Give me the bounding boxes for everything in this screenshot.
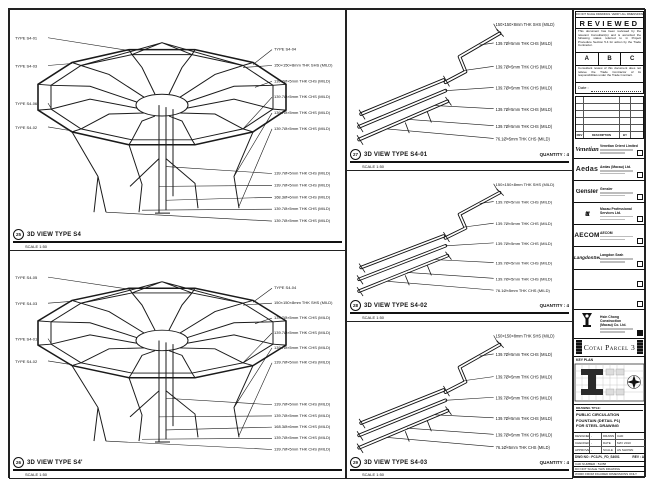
consultant-row-aecom: AECOM AECOM — [574, 225, 645, 247]
status-options: A B C — [576, 53, 643, 66]
annotation-label: TYPE S4-02 — [15, 125, 37, 130]
canopy-3d-drawing: TYPE S4-01 TYPE S4-03 TYPE S4-06 TYPE S4… — [10, 10, 346, 228]
annotation-label: 139.7Ø×5mm THK CHS (MILD) — [274, 182, 331, 187]
field-value: CAD — [616, 433, 645, 440]
dwg-no-value: PC3-PL_FD_S4001 — [591, 454, 619, 461]
address-line — [600, 192, 633, 194]
by-col-header: BY — [620, 132, 631, 138]
annotation-labels: 150×150×8mm THK SHS (MILD) 139.7Ø×5mm TH… — [496, 22, 555, 142]
annotation-label: 150×150×8mm THK SHS (MILD) — [496, 22, 555, 27]
annotation-label: 139.7Ø×5mm THK CHS (MILD) — [274, 206, 331, 211]
quantity-note: QUANTITY : 4 — [540, 152, 569, 157]
field-value: - — [590, 433, 602, 440]
description-col-header: DESCRIPTION — [584, 132, 620, 138]
blank-stamp-row — [574, 270, 645, 290]
venetian-logo: Venetian — [574, 146, 600, 153]
annotation-labels: 150×150×8mm THK SHS (MILD) 139.7Ø×5mm TH… — [496, 182, 555, 293]
status-option-b: B — [599, 53, 622, 65]
address-line — [600, 328, 633, 330]
quantity-note: QUANTITY : 4 — [540, 460, 569, 465]
reviewed-paragraph-1: This document has been reviewed by the r… — [576, 29, 643, 53]
stamp-checkbox — [637, 301, 643, 307]
annotation-label: 139.7Ø×5mm THK CHS (MILD) — [274, 361, 331, 365]
title-rule — [13, 469, 342, 471]
annotation-label: 139.7Ø×5mm THK CHS (MILD) — [274, 94, 331, 99]
view-scale: SCALE 1:50 — [25, 244, 342, 249]
title-rule — [13, 241, 342, 243]
field-label: DRAWN — [602, 433, 616, 440]
annotation-label: 139.7Ø×5mm THK CHS (MILD) — [274, 171, 331, 176]
field-label: CHECKED — [574, 440, 590, 447]
view-title: 3D VIEW TYPE S4-03 — [364, 460, 427, 466]
address-line — [600, 219, 625, 221]
client-row: Venetian Venetian Orient Limited — [574, 140, 645, 159]
view-title: 3D VIEW TYPE S4' — [27, 460, 83, 466]
consultant-name: Langdon Seah — [600, 253, 639, 257]
cad-number-value: 51358 — [598, 462, 606, 466]
status-option-a: A — [576, 53, 599, 65]
stamp-checkbox — [637, 330, 643, 336]
view-title: 3D VIEW TYPE S4-02 — [364, 303, 427, 309]
address-line — [600, 173, 625, 175]
annotation-label: TYPE S4-03 — [15, 302, 37, 306]
view-scale: SCALE 1:50 — [25, 472, 342, 477]
annotation-label: 76.1Ø×5mm THK CHS (MILD) — [496, 136, 551, 141]
annotation-label: 139.7Ø×5mm THK CHS (MILD) — [274, 78, 331, 83]
field-label: APPROVED — [574, 447, 590, 453]
annotation-label: 168.3Ø×6mm THK CHS (MILD) — [274, 425, 331, 429]
field-label: SCALE — [602, 447, 616, 453]
aecom-logo: AECOM — [574, 232, 600, 239]
key-plan: KEY PLAN — [574, 357, 645, 405]
view-title-bar: 28 3D VIEW TYPE S4-02 QUANTITY : 4 SCALE… — [350, 300, 569, 320]
drawing-sheet: TYPE S4-01 TYPE S4-03 TYPE S4-06 TYPE S4… — [0, 0, 650, 488]
beam-3d-drawing: 150×150×8mm THK SHS (MILD) 139.7Ø×5mm TH… — [347, 10, 572, 148]
pillar-icon — [576, 340, 582, 354]
annotation-label: 139.7Ø×5mm THK CHS (MILD) — [496, 432, 553, 437]
client-name: Venetian Orient Limited — [600, 144, 639, 148]
view-panel-s4: TYPE S4-01 TYPE S4-03 TYPE S4-06 TYPE S4… — [9, 9, 346, 251]
annotation-label: TYPE S4-05 — [15, 276, 37, 280]
status-option-c: C — [621, 53, 643, 65]
address-line — [600, 170, 633, 172]
annotation-label: 139.7Ø×5mm THK CHS (MILD) — [496, 86, 553, 91]
field-value: MAY 2010 — [616, 440, 645, 447]
annotation-label: 139.7Ø×5mm THK CHS (MILD) — [274, 126, 331, 131]
revision-table-header: REV DESCRIPTION BY — [576, 132, 643, 138]
annotation-label: 150×150×8mm THK SHS (MILD) — [274, 63, 333, 68]
beam-3d-drawing: 150×150×8mm THK SHS (MILD) 139.7Ø×5mm TH… — [347, 171, 572, 299]
annotation-label: TYPE S4-06 — [15, 101, 38, 106]
beam-3d-drawing: 150×150×8mm THK SHS (MILD) 139.7Ø×5mm TH… — [347, 322, 572, 456]
view-scale: SCALE 1:50 — [362, 472, 569, 477]
view-title: 3D VIEW TYPE S4 — [27, 232, 81, 238]
address-line — [600, 216, 633, 218]
address-line — [600, 195, 625, 197]
annotation-label: 168.3Ø×6mm THK CHS (MILD) — [274, 194, 331, 199]
project-banner: Cotai Parcel 3 — [574, 339, 645, 357]
contractor-row: Hsin Chong Construction (Macau) Co. Ltd. — [574, 310, 645, 339]
annotation-label: 139.7Ø×5mm THK CHS (MILD) — [274, 403, 331, 407]
annotation-label: 150×150×8mm THK SHS (MILD) — [496, 333, 555, 338]
annotation-label: TYPE S4-04 — [274, 47, 297, 52]
blank-stamp-row — [574, 290, 645, 310]
annotation-label: 139.7Ø×5mm THK CHS (MILD) — [496, 261, 553, 266]
aedas-logo: Aedas — [574, 166, 600, 173]
stamp-checkbox — [637, 238, 643, 244]
sheet-border: TYPE S4-01 TYPE S4-03 TYPE S4-06 TYPE S4… — [8, 8, 645, 478]
annotation-label: TYPE S4-02 — [15, 360, 37, 364]
detail-bubble: 26 — [13, 457, 24, 468]
annotation-label: 139.7Ø×5mm THK CHS (MILD) — [496, 352, 553, 357]
view-title-bar: 25 3D VIEW TYPE S4 SCALE 1:50 — [13, 229, 342, 249]
annotation-label: 139.7Ø×5mm THK CHS (MILD) — [496, 200, 553, 205]
rev-value: REV : A — [632, 454, 644, 461]
view-scale: SCALE 1:50 — [362, 164, 569, 169]
address-line — [600, 239, 625, 241]
stamp-checkbox — [637, 150, 643, 156]
title-block: DO NOT SCALE DRAWINGS. VERIFY ALL DIMENS… — [573, 9, 646, 477]
contractor-logo-icon — [574, 312, 600, 335]
gensler-logo: Gensler — [574, 189, 600, 195]
annotation-label: TYPE S4-03 — [15, 63, 38, 68]
view-panel-s4-01: 150×150×8mm THK SHS (MILD) 139.7Ø×5mm TH… — [346, 9, 573, 171]
field-label: DESIGNED — [574, 433, 590, 440]
stamp-checkbox — [637, 261, 643, 267]
detail-bubble: 27 — [350, 149, 361, 160]
annotation-label: TYPE S4-01 — [15, 338, 37, 342]
annotation-label: 139.7Ø×5mm THK CHS (MILD) — [496, 41, 553, 46]
annotation-label: 139.7Ø×5mm THK CHS (MILD) — [496, 241, 553, 246]
consultant-row-aedas: Aedas Aedas (Macau) Ltd. — [574, 159, 645, 181]
langdonseah-logo: LangdonSeah — [574, 255, 600, 260]
date-label: Date : — [578, 83, 589, 93]
title-rule — [350, 469, 569, 471]
annotation-label: 139.7Ø×5mm THK CHS (MILD) — [274, 414, 331, 418]
view-panel-s4-03: 150×150×8mm THK SHS (MILD) 139.7Ø×5mm TH… — [346, 321, 573, 479]
annotation-label: 150×150×8mm THK SHS (MILD) — [274, 301, 333, 305]
annotation-label: 139.7Ø×5mm THK CHS (MILD) — [496, 375, 553, 380]
reviewed-stamp: DO NOT SCALE DRAWINGS. VERIFY ALL DIMENS… — [575, 11, 644, 94]
key-plan-map — [574, 363, 645, 402]
annotation-label: 139.7Ø×5mm THK CHS (MILD) — [496, 221, 553, 226]
stamp-checkbox — [637, 194, 643, 200]
rev-col-header: REV — [576, 132, 584, 138]
annotation-label: 139.7Ø×5mm THK CHS (MILD) — [496, 416, 553, 421]
consultant-row-gensler: Gensler Gensler — [574, 181, 645, 203]
contractor-name-1: Hsin Chong Construction — [600, 315, 639, 323]
consultant-name: Macau Professional Services Ltd. — [600, 207, 639, 215]
address-line — [600, 331, 625, 333]
canopy-3d-drawing: TYPE S4-05 TYPE S4-03 TYPE S4-01 TYPE S4… — [10, 251, 346, 456]
consultant-row-langdonseah: LangdonSeah Langdon Seah — [574, 247, 645, 270]
reviewed-paragraph-2: Consultant review of this document does … — [576, 66, 643, 83]
address-line — [600, 152, 625, 154]
consultant-name: Gensler — [600, 187, 639, 191]
annotation-label: 150×150×8mm THK SHS (MILD) — [496, 182, 555, 187]
stamp-checkbox — [637, 172, 643, 178]
field-value: - — [590, 447, 602, 453]
address-line — [600, 149, 633, 151]
annotation-labels: 150×150×8mm THK SHS (MILD) 139.7Ø×5mm TH… — [496, 333, 555, 449]
dwg-number-row: DWG NO : PC3-PL_FD_S4001 REV : A — [574, 454, 645, 462]
view-title-bar: 29 3D VIEW TYPE S4-03 QUANTITY : 4 SCALE… — [350, 457, 569, 477]
revision-table: REV DESCRIPTION BY — [575, 96, 644, 139]
field-value: AS SHOWN — [616, 447, 645, 453]
view-title-bar: 26 3D VIEW TYPE S4' SCALE 1:50 — [13, 457, 342, 477]
detail-bubble: 29 — [350, 457, 361, 468]
cad-number-label: CAD NUMBER : — [575, 462, 597, 466]
annotation-label: 139.7Ø×5mm THK CHS (MILD) — [496, 395, 553, 400]
annotation-label: TYPE S4-01 — [15, 36, 38, 41]
view-scale: SCALE 1:50 — [362, 315, 569, 320]
annotation-label: 76.1Ø×5mm THK CHS (MILD) — [496, 288, 551, 293]
mps-logo: ttt — [574, 209, 600, 218]
project-name: Cotai Parcel 3 — [584, 343, 636, 352]
field-value: - — [590, 440, 602, 447]
annotation-label: 139.7Ø×5mm THK CHS (MILD) — [274, 346, 331, 350]
drawing-title-block: DRAWING TITLE: PUBLIC CIRCULATION FOUNTA… — [574, 405, 645, 433]
address-line — [600, 258, 633, 260]
annotation-label: 139.7Ø×5mm THK CHS (MILD) — [496, 107, 553, 112]
dwg-no-label: DWG NO : — [575, 454, 590, 461]
annotation-label: 139.7Ø×5mm THK CHS (MILD) — [274, 316, 331, 320]
view-panel-s4-prime: TYPE S4-05 TYPE S4-03 TYPE S4-01 TYPE S4… — [9, 250, 346, 479]
contractor-name-2: (Macau) Co. Ltd. — [600, 323, 639, 327]
field-label: DATE — [602, 440, 616, 447]
detail-bubble: 25 — [13, 229, 24, 240]
detail-bubble: 28 — [350, 300, 361, 311]
consultant-name: Aedas (Macau) Ltd. — [600, 165, 639, 169]
quantity-note: QUANTITY : 4 — [540, 303, 569, 308]
consultant-row-mps: ttt Macau Professional Services Ltd. — [574, 203, 645, 225]
date-row: Date : — [576, 83, 643, 93]
view-title: 3D VIEW TYPE S4-01 — [364, 152, 427, 158]
annotation-label: 139.7Ø×5mm THK CHS (MILD) — [496, 276, 553, 281]
annotation-label: 139.7Ø×5mm THK CHS (MILD) — [274, 218, 331, 223]
address-line — [600, 236, 633, 238]
footer-note-2: WORK FROM FIGURED DIMENSIONS ONLY — [574, 472, 645, 476]
annotation-label: 139.7Ø×5mm THK CHS (MILD) — [274, 331, 331, 335]
annotation-label: 139.7Ø×5mm THK CHS (MILD) — [274, 448, 331, 452]
stamp-checkbox — [637, 216, 643, 222]
stamp-checkbox — [637, 281, 643, 287]
date-fill-line — [591, 85, 641, 92]
address-line — [600, 261, 625, 263]
signature-fields: DESIGNED - DRAWN CAD CHECKED - DATE MAY … — [574, 433, 645, 454]
view-panel-s4-02: 150×150×8mm THK SHS (MILD) 139.7Ø×5mm TH… — [346, 170, 573, 322]
title-rule — [350, 312, 569, 314]
title-rule — [350, 161, 569, 163]
annotation-label: 139.7Ø×5mm THK CHS (MILD) — [274, 436, 331, 440]
annotation-label: 139.7Ø×5mm THK CHS (MILD) — [274, 110, 331, 115]
reviewed-title: REVIEWED — [576, 18, 643, 29]
annotation-labels: TYPE S4-05 TYPE S4-03 TYPE S4-01 TYPE S4… — [15, 276, 333, 451]
annotation-label: 76.1Ø×5mm THK CHS (MILD) — [496, 445, 551, 450]
drawing-title-line-3: FOR STEEL DRAWING — [576, 423, 643, 429]
view-title-bar: 27 3D VIEW TYPE S4-01 QUANTITY : 4 SCALE… — [350, 149, 569, 169]
annotation-label: TYPE S4-04 — [274, 286, 297, 290]
annotation-label: 139.7Ø×5mm THK CHS (MILD) — [496, 64, 553, 69]
consultant-name: AECOM — [600, 231, 639, 235]
pillar-icon — [637, 340, 643, 354]
annotation-label: 139.7Ø×5mm THK CHS (MILD) — [496, 124, 553, 129]
